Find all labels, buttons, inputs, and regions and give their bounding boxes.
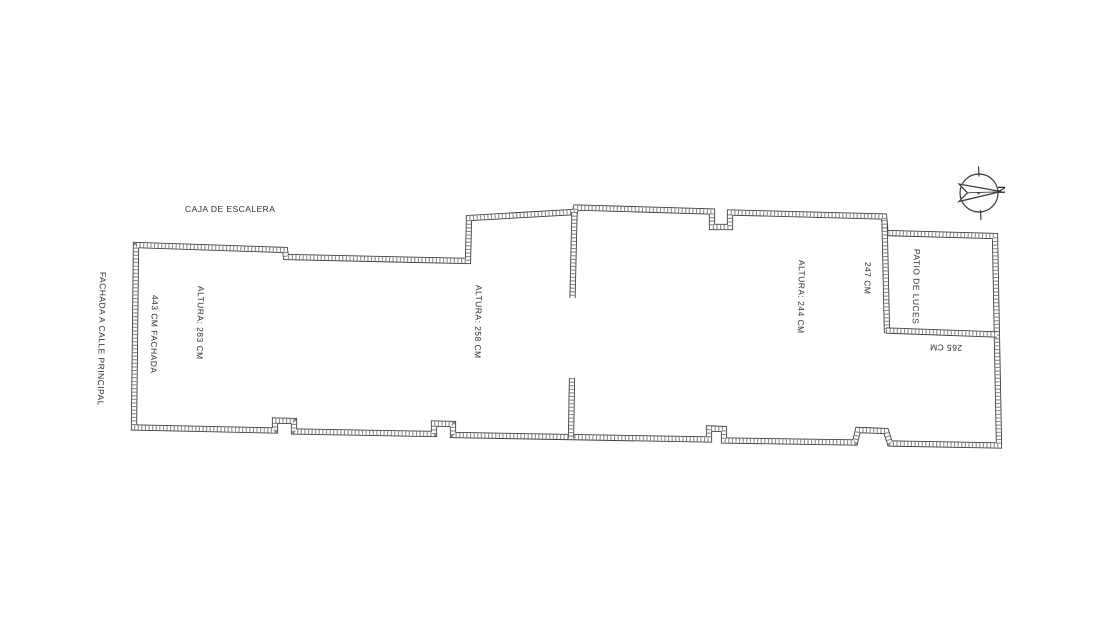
room-height-label-244: ALTURA: 244 CM bbox=[796, 260, 806, 334]
room-height-label-258: ALTURA: 258 CM bbox=[473, 285, 483, 359]
patio-name-label: PATIO DE LUCES bbox=[911, 249, 921, 325]
floor-plan-drawing bbox=[0, 0, 1110, 626]
facade-dimension-label: 443 CM FACHADA bbox=[149, 295, 159, 374]
interior-walls bbox=[571, 212, 997, 439]
exterior-walls bbox=[134, 208, 999, 446]
stairwell-label: CAJA DE ESCALERA bbox=[185, 205, 275, 214]
compass-north-label: N bbox=[996, 186, 1007, 194]
patio-width-label: 247 CM bbox=[863, 262, 872, 295]
patio-depth-label: 265 CM bbox=[930, 343, 963, 352]
street-facade-label: FACHADA A CALLE PRINCIPAL bbox=[96, 272, 107, 406]
room-height-label-283: ALTURA: 283 CM bbox=[195, 286, 205, 360]
floor-plan-page: CAJA DE ESCALERA FACHADA A CALLE PRINCIP… bbox=[0, 0, 1110, 626]
